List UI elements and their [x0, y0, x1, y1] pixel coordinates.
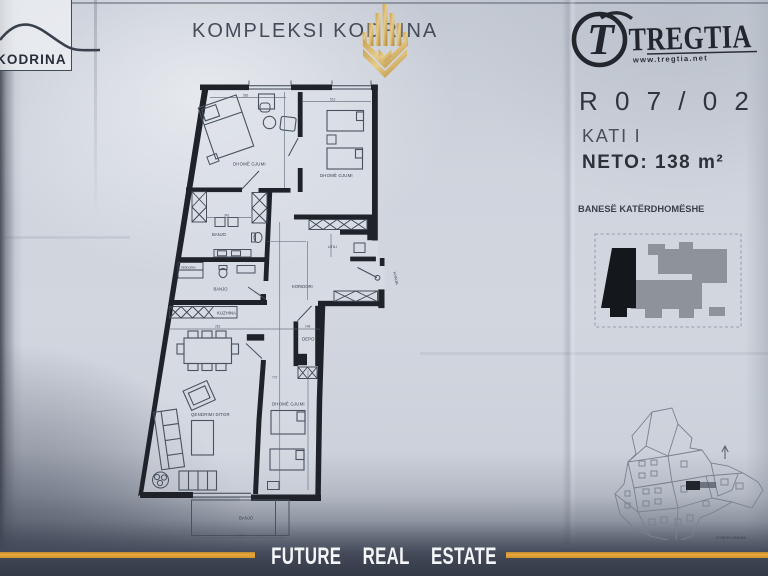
svg-text:490: 490 [237, 534, 243, 538]
svg-text:772: 772 [272, 376, 278, 380]
svg-text:281: 281 [215, 325, 221, 329]
svg-text:BANJO: BANJO [214, 287, 229, 292]
svg-text:DEPO: DEPO [302, 337, 315, 342]
svg-text:BANJO: BANJO [212, 232, 227, 237]
svg-text:583: 583 [243, 94, 249, 98]
svg-text:148: 148 [305, 325, 311, 329]
svg-text:KUZHINA: KUZHINA [217, 311, 236, 316]
svg-text:PERDORIM: PERDORIM [181, 266, 196, 270]
svg-text:342: 342 [224, 214, 230, 218]
svg-text:BANJO: BANJO [239, 516, 254, 521]
svg-text:513: 513 [330, 98, 336, 102]
svg-text:DHOMË GJUMI: DHOMË GJUMI [320, 173, 353, 178]
svg-text:HYRJA: HYRJA [392, 271, 400, 285]
svg-text:DHOMË GJUMI: DHOMË GJUMI [233, 162, 266, 167]
svg-text:UTILI: UTILI [328, 245, 337, 249]
svg-text:DHOMË GJUMI: DHOMË GJUMI [272, 402, 305, 407]
svg-text:KORIDORI: KORIDORI [292, 284, 313, 289]
svg-text:QENDRIMI DITOR: QENDRIMI DITOR [191, 412, 230, 417]
